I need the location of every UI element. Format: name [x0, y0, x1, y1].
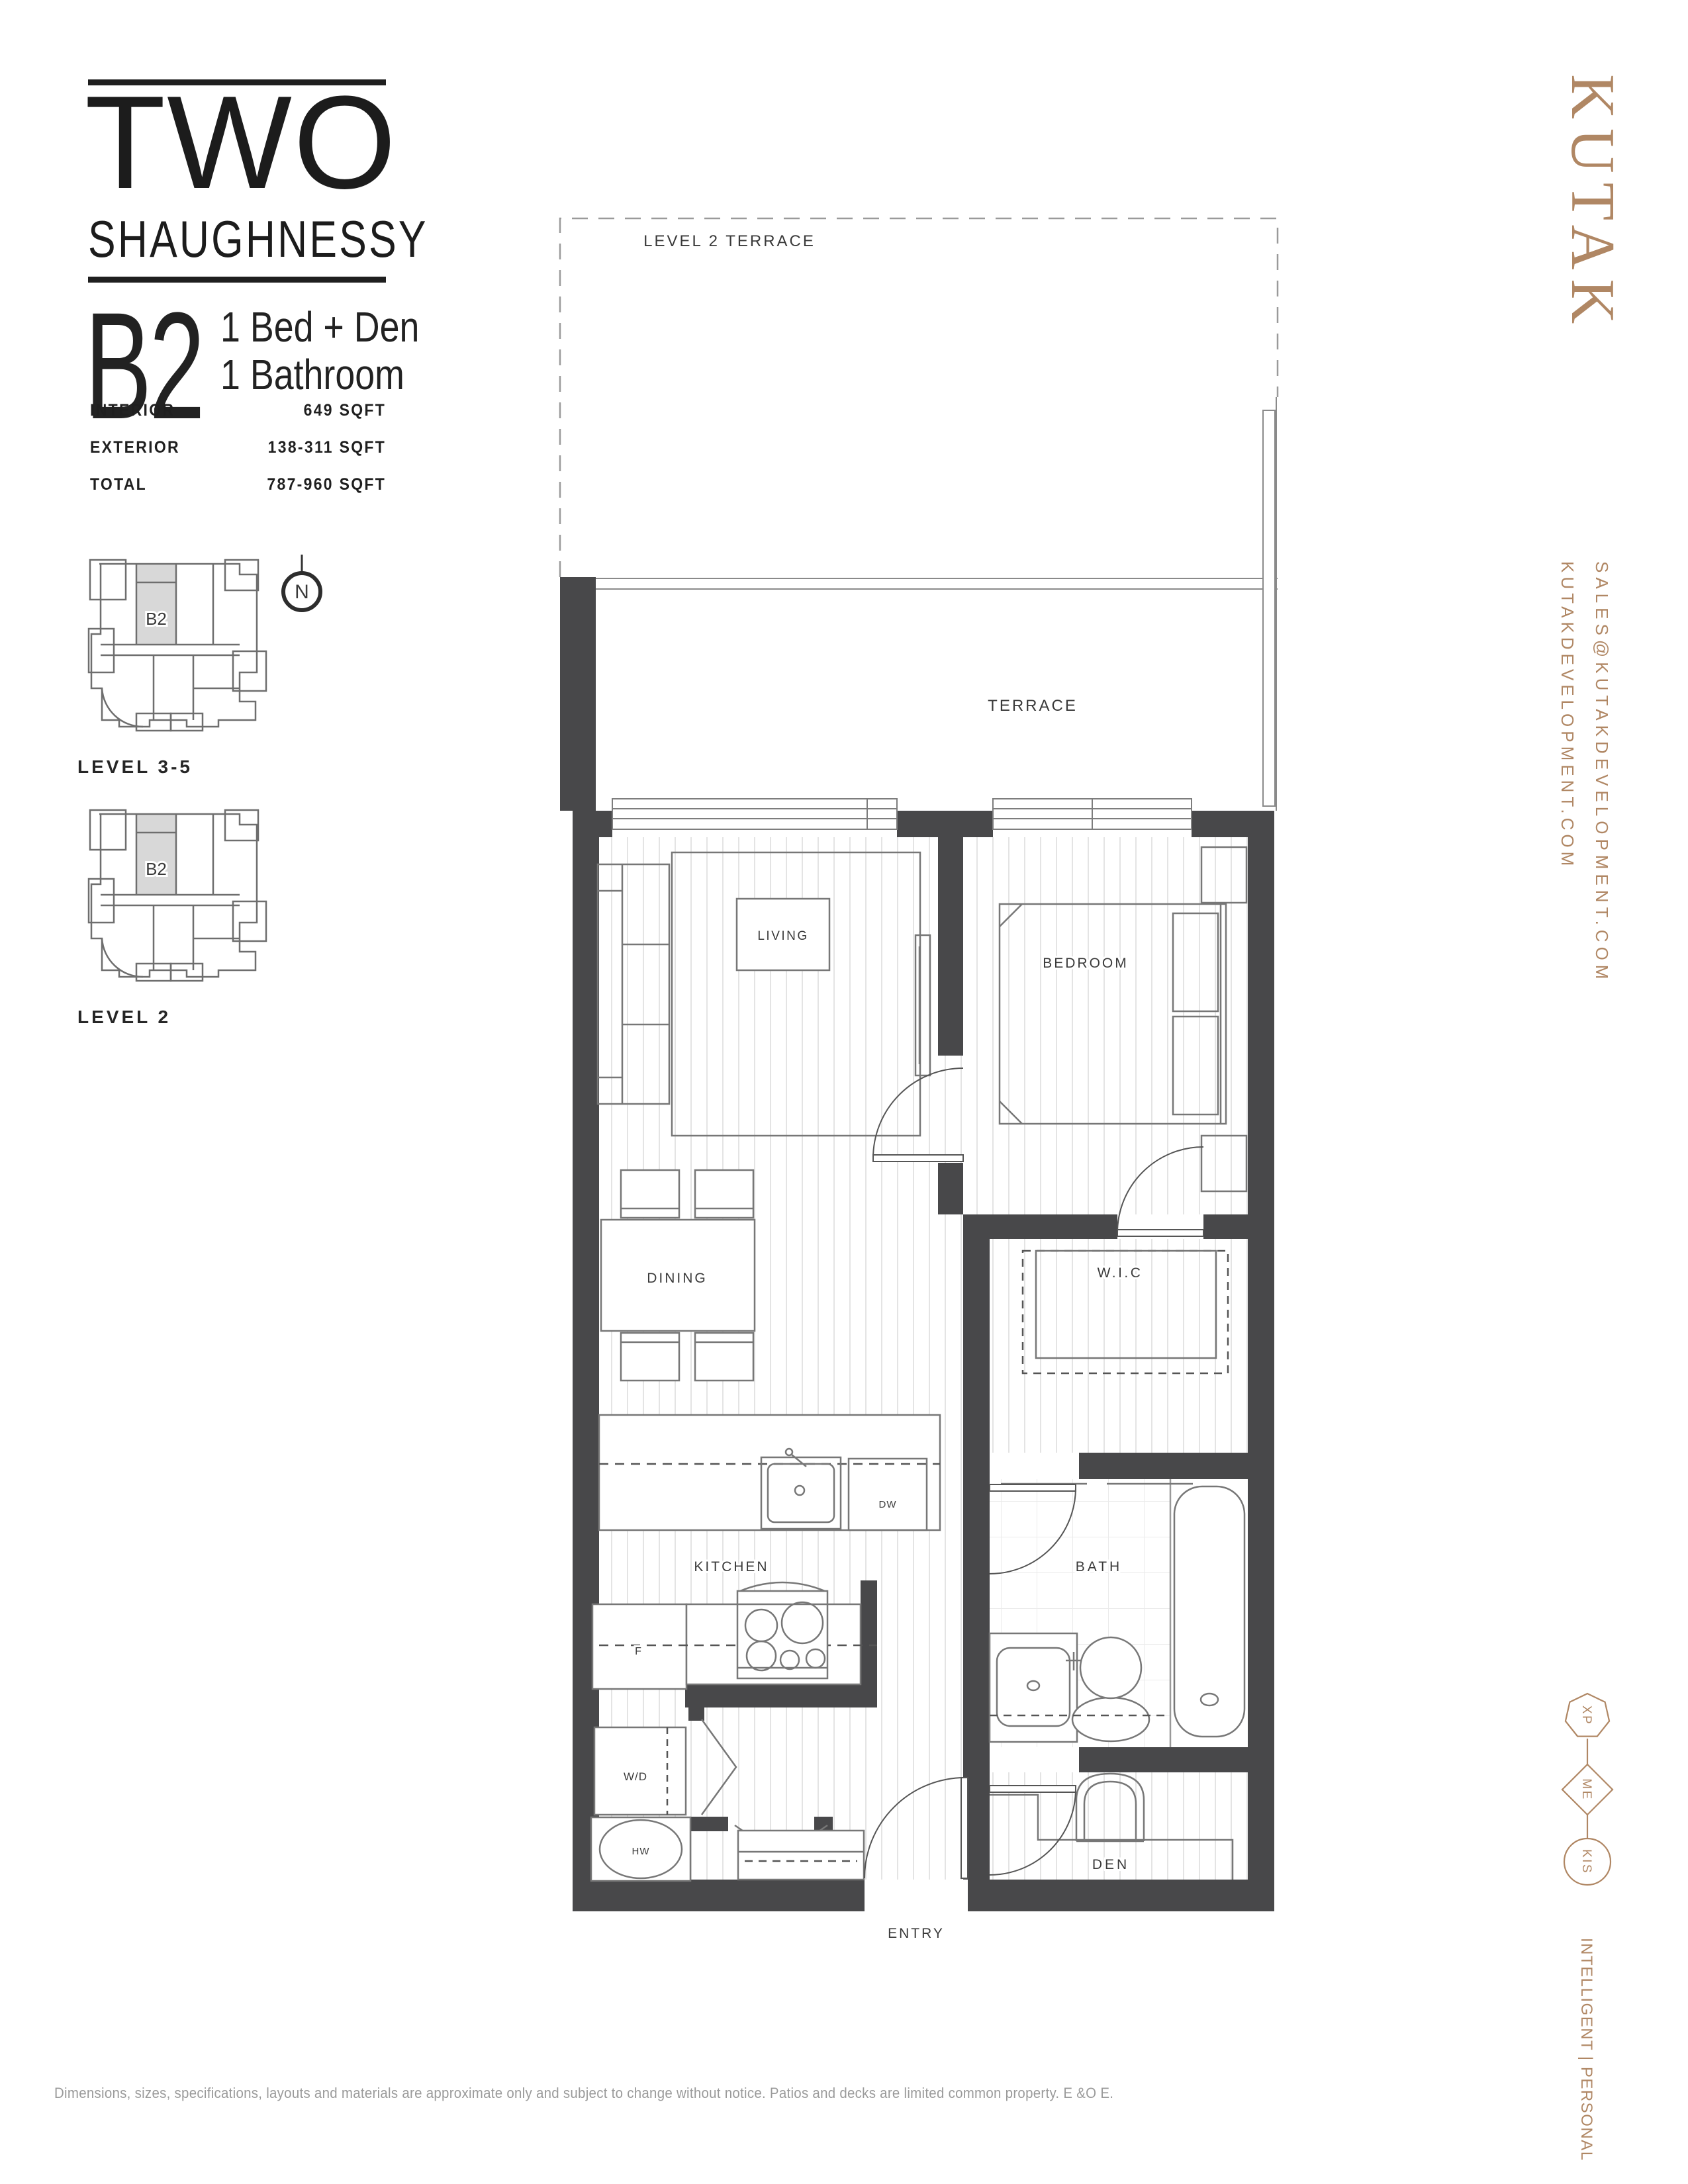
label-bedroom: BEDROOM	[1043, 956, 1129, 971]
label-kitchen: KITCHEN	[694, 1559, 769, 1574]
north-arrow-icon: N	[283, 555, 320, 610]
wall-wic-bath	[1079, 1453, 1274, 1479]
label-fridge: F	[635, 1646, 641, 1657]
entry-door	[961, 1778, 968, 1878]
label-hot-water: HW	[632, 1846, 650, 1857]
keyplan-level-2	[89, 810, 266, 981]
keyplan-unit-highlight	[136, 814, 176, 895]
keyplan1-unit-label: B2	[146, 609, 167, 629]
label-entry: ENTRY	[888, 1926, 945, 1941]
dining-chair	[621, 1333, 679, 1381]
den-door	[990, 1786, 1076, 1792]
badge-label-kis: KIS	[1579, 1849, 1593, 1874]
compass-letter: N	[295, 581, 309, 603]
label-dining: DINING	[647, 1271, 708, 1286]
wall-bottom-left	[573, 1880, 865, 1911]
label-living: LIVING	[757, 929, 808, 943]
wall-bath-den	[1079, 1747, 1274, 1772]
label-dishwasher: DW	[879, 1499, 897, 1510]
brand-tagline: INTELLIGENT | PERSONAL	[1577, 1938, 1595, 2161]
developer-website: KUTAKDEVELOPMENT.COM	[1557, 561, 1577, 870]
wic-door	[1117, 1230, 1203, 1236]
wall-left	[573, 837, 599, 1880]
bath-door	[990, 1484, 1076, 1491]
keyplan1-level-label: LEVEL 3-5	[77, 756, 193, 777]
wall-bedroom-wic	[963, 1214, 1117, 1239]
kitchen-island	[599, 1415, 940, 1530]
badge-label-xp: XP	[1579, 1706, 1593, 1725]
label-terrace: TERRACE	[988, 697, 1078, 715]
wall-bottom-right	[968, 1880, 1274, 1911]
toilet-bowl	[1080, 1637, 1141, 1698]
toilet-base	[1072, 1698, 1149, 1741]
label-wic: W.I.C	[1098, 1265, 1143, 1281]
dining-chair	[695, 1333, 753, 1381]
wall-living-bedroom	[938, 837, 963, 1056]
terrace-boundary	[596, 397, 1278, 811]
floorplan-drawing: B2 LEVEL 3-5 N B2 LEVEL 2	[0, 0, 1688, 2184]
keyplan-unit-highlight	[136, 564, 176, 645]
disclaimer-text: Dimensions, sizes, specifications, layou…	[54, 2085, 1113, 2102]
dining-chair	[621, 1170, 679, 1218]
developer-logo: KUTAK	[1557, 74, 1628, 333]
label-level2-terrace: LEVEL 2 TERRACE	[643, 232, 816, 250]
label-den: DEN	[1092, 1857, 1129, 1872]
bathtub	[1174, 1486, 1244, 1737]
entry-bench	[738, 1831, 864, 1880]
level2-terrace-outline	[560, 218, 1278, 577]
sales-email: SALES@KUTAKDEVELOPMENT.COM	[1591, 561, 1612, 983]
keyplan-level-3-5	[89, 560, 266, 731]
wall-right	[1248, 837, 1274, 1880]
dining-chair	[695, 1170, 753, 1218]
wall-terrace-left	[560, 577, 596, 811]
floorplan-brochure-page: TWO SHAUGHNESSY B2 1 Bed + Den 1 Bathroo…	[0, 0, 1688, 2184]
keyplan2-unit-label: B2	[146, 859, 167, 879]
wall-kitchen-counter-edge	[685, 1684, 877, 1707]
keyplan2-level-label: LEVEL 2	[77, 1007, 171, 1027]
label-washer-dryer: W/D	[624, 1770, 647, 1783]
label-bath: BATH	[1076, 1559, 1122, 1574]
bedroom-door	[873, 1155, 963, 1161]
living-window	[612, 799, 897, 829]
badge-label-me: ME	[1579, 1778, 1593, 1801]
